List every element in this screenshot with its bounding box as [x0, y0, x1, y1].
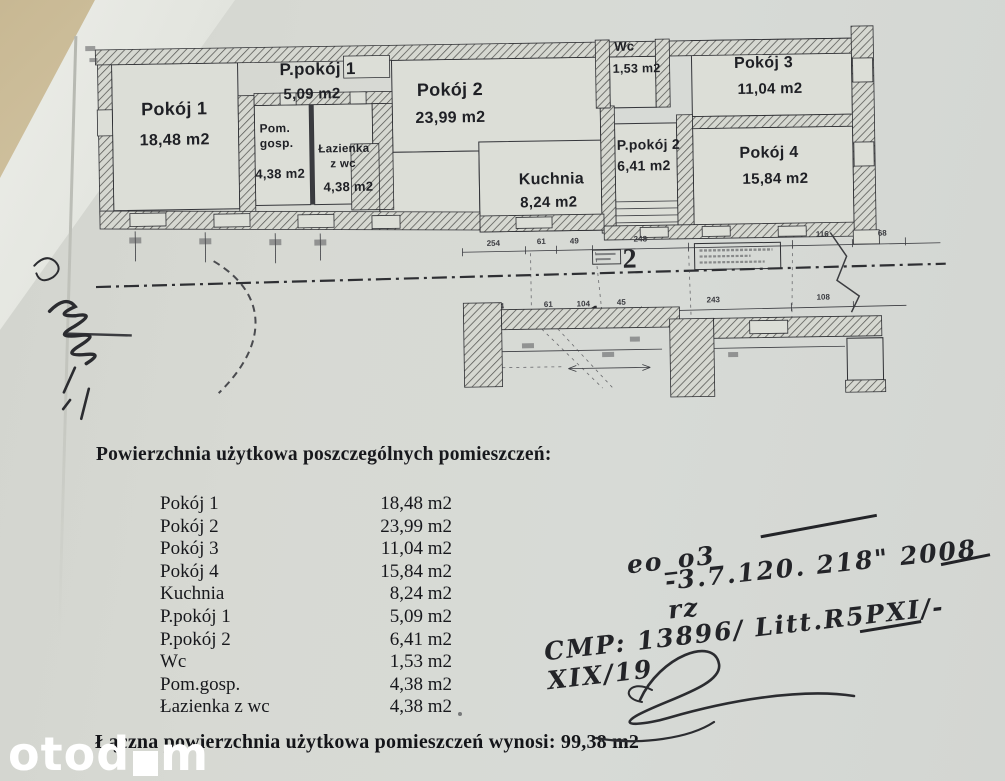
watermark-text-left: otod [8, 731, 130, 777]
watermark-text-right: m [160, 731, 209, 777]
scanned-floorplan-page: Pokój 1 18,48 m2 P.pokój 1 5,09 m2 Pom. … [0, 0, 1005, 781]
signature [0, 0, 1005, 781]
otodom-watermark-logo: otod m [8, 731, 209, 777]
watermark-square-glyph [133, 751, 158, 776]
